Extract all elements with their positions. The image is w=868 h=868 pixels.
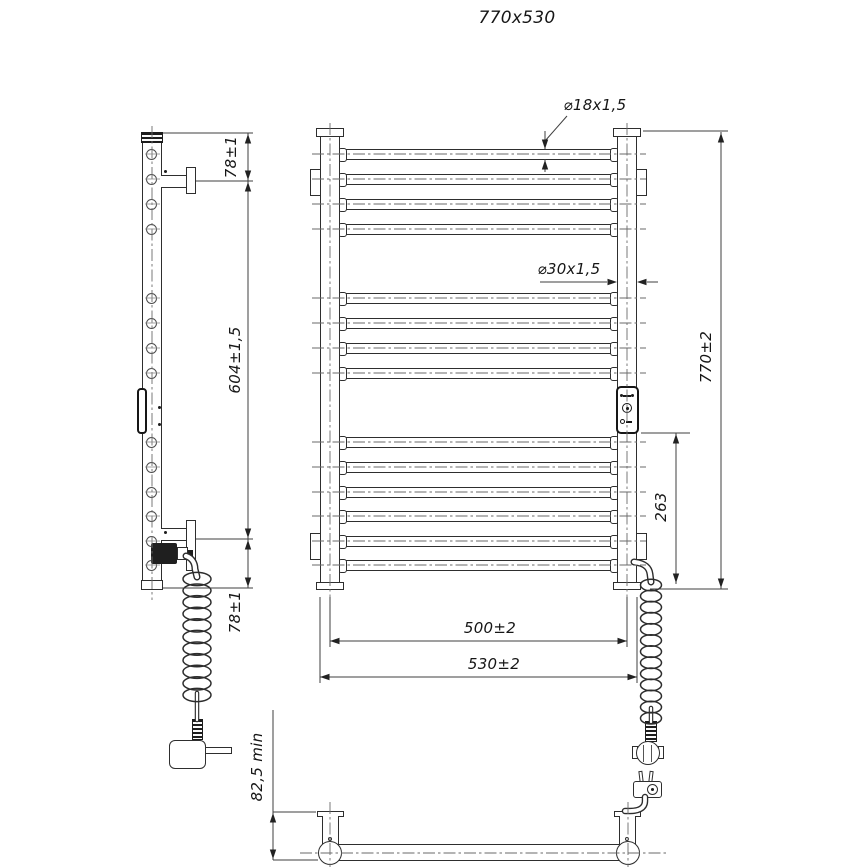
wall-bracket-front-bottom-right	[636, 533, 647, 560]
power-connector-barrel	[177, 547, 188, 560]
rung	[338, 368, 619, 379]
rung	[338, 199, 619, 210]
front-right-tube-top-cap	[613, 128, 641, 137]
side-bracket-bottom-stem	[161, 528, 187, 541]
front-right-tube-bottom-cap	[613, 582, 641, 590]
side-screw-lower	[158, 423, 161, 426]
side-bracket-top-stem	[161, 175, 187, 188]
control-gear-center-dot-icon	[626, 407, 629, 410]
side-bracket-top-screw	[164, 170, 167, 173]
rung-end-circle	[146, 149, 157, 160]
side-bracket-top-flange	[186, 167, 196, 194]
dim-width-overall: 530±2	[468, 655, 520, 673]
plug-seam-right	[651, 745, 652, 762]
rung-end-circle	[146, 368, 157, 379]
power-connector-tip	[188, 550, 193, 557]
front-left-tube-top-cap	[316, 128, 344, 137]
dim-bracket-bottom-offset: 78±1	[226, 591, 244, 633]
rung	[338, 293, 619, 304]
drawing-title: 770x530	[478, 8, 555, 28]
front-left-tube-bottom-cap	[316, 582, 344, 590]
rung	[338, 224, 619, 235]
control-power-dot-right-icon	[631, 394, 634, 397]
plug-round-body	[636, 741, 660, 765]
front-left-vertical-tube	[320, 132, 340, 584]
rung-end-circle	[146, 318, 157, 329]
dim-rung-tube-dia: ⌀18x1,5	[564, 96, 627, 114]
wall-bracket-front-top-right	[636, 169, 647, 196]
bottom-view-ball-right	[616, 841, 640, 865]
side-control-box	[137, 388, 147, 434]
rung	[338, 437, 619, 448]
rung-end-circle	[146, 293, 157, 304]
rung	[338, 462, 619, 473]
rung-end-circle	[146, 174, 157, 185]
rung	[338, 174, 619, 185]
rung-end-circle	[146, 511, 157, 522]
dim-width-axis: 500±2	[464, 619, 516, 637]
dim-vertical-tube-dia: ⌀30x1,5	[538, 260, 601, 278]
side-view-top-cap	[141, 132, 163, 143]
rung	[338, 318, 619, 329]
rung	[338, 487, 619, 498]
control-key-bar-icon	[626, 421, 632, 423]
plug-front-ring-dot	[651, 788, 654, 791]
power-connector-side	[151, 543, 177, 564]
front-right-vertical-tube	[617, 132, 637, 584]
rung-end-circle	[146, 224, 157, 235]
rung	[338, 149, 619, 160]
bottom-view-tube	[330, 844, 628, 861]
side-bracket-bottom-flange	[186, 520, 196, 571]
plug-side-pin	[205, 747, 232, 754]
plug-side-body	[169, 740, 206, 769]
side-screw-upper	[158, 406, 161, 409]
cord-ferrule-right	[645, 721, 657, 742]
rung	[338, 511, 619, 522]
dim-wall-clearance: 82,5 min	[248, 733, 266, 802]
plug-seam-left	[643, 745, 644, 762]
dim-overall-height: 770±2	[697, 331, 715, 383]
side-view-bottom-cap	[141, 580, 163, 590]
rung	[338, 343, 619, 354]
towel-rail-technical-drawing: 770x530 ⌀18x1,5 ⌀30x1,5 770±2 263 500±2 …	[0, 0, 868, 868]
dim-bracket-top-offset: 78±1	[222, 136, 240, 178]
control-power-bar-icon	[623, 395, 631, 397]
rung-end-circle	[146, 199, 157, 210]
rung-end-circle	[146, 437, 157, 448]
side-bracket-bottom-screw	[164, 531, 167, 534]
rung-end-circle	[146, 343, 157, 354]
rung-end-circle	[146, 462, 157, 473]
rung	[338, 536, 619, 547]
rung	[338, 560, 619, 571]
dim-bracket-span: 604±1,5	[226, 326, 244, 393]
dim-control-box-offset: 263	[652, 492, 670, 522]
cord-ferrule-left	[192, 719, 203, 740]
rung-end-circle	[146, 487, 157, 498]
bottom-view-ball-left	[318, 841, 342, 865]
dimension-linework	[0, 0, 868, 868]
control-key-icon	[620, 419, 625, 424]
